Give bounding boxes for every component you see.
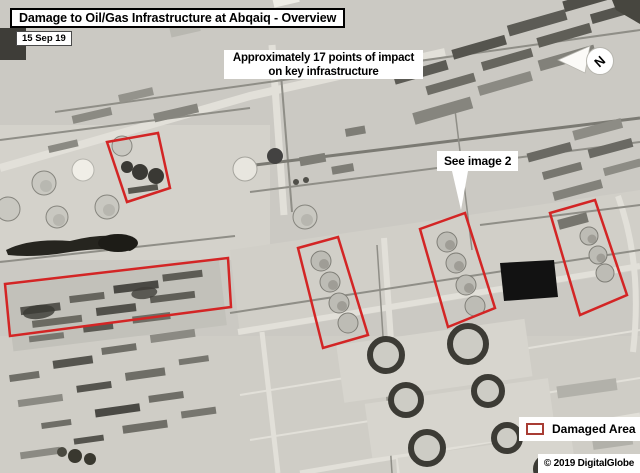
- north-letter: N: [591, 52, 608, 69]
- impact-note-line2: on key infrastructure: [224, 65, 423, 79]
- damaged-area-box-2: [5, 258, 231, 336]
- title-banner: Damage to Oil/Gas Infrastructure at Abqa…: [10, 8, 345, 28]
- north-indicator: N: [586, 47, 614, 75]
- impact-note-line1: Approximately 17 points of impact: [224, 51, 423, 65]
- damaged-area-box-5: [550, 200, 627, 315]
- date-label: 15 Sep 19: [16, 31, 72, 46]
- damaged-area-swatch: [526, 423, 544, 435]
- damaged-area-box-3: [298, 237, 368, 348]
- copyright-credit: © 2019 DigitalGlobe: [538, 454, 640, 473]
- impact-note: Approximately 17 points of impact on key…: [224, 50, 423, 79]
- annotated-satellite-view: Damage to Oil/Gas Infrastructure at Abqa…: [0, 0, 640, 473]
- see-image-2-callout: See image 2: [437, 151, 518, 171]
- damaged-area-box-4: [420, 213, 495, 327]
- damaged-area-legend: Damaged Area: [519, 417, 640, 441]
- damaged-area-box-1: [107, 133, 170, 202]
- legend-label: Damaged Area: [552, 422, 636, 436]
